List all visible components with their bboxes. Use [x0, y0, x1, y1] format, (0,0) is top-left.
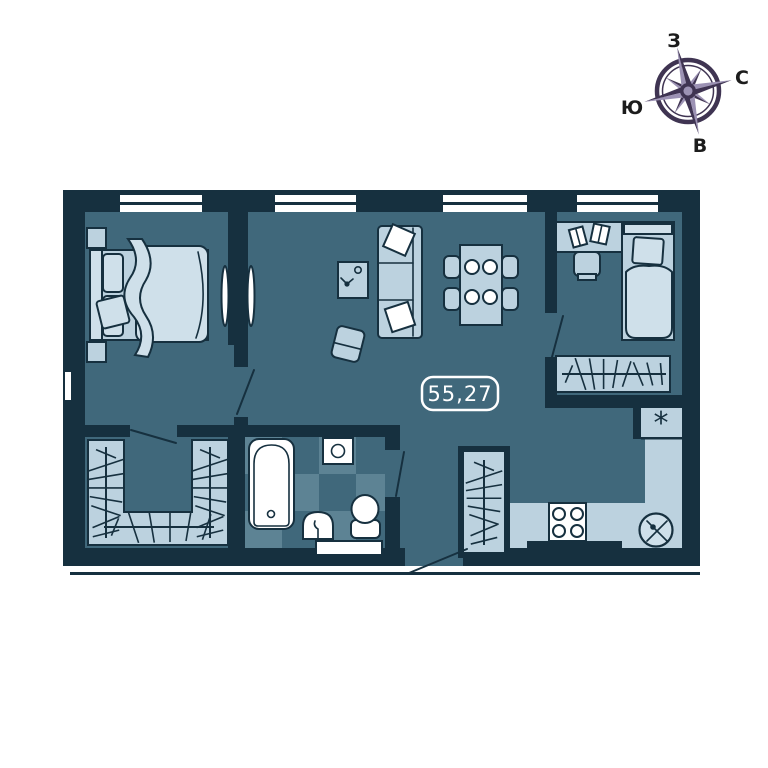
single-bed-blanket — [626, 266, 672, 338]
dining-table — [460, 245, 502, 325]
bed-pillow-1 — [103, 254, 123, 292]
area-badge: 55,27 — [422, 377, 498, 410]
compass-label-west: З — [667, 30, 681, 52]
fridge-divider — [633, 408, 641, 439]
toilet-bowl — [352, 495, 379, 523]
dining-chair-1 — [444, 256, 460, 278]
plate-4 — [483, 290, 497, 304]
compass-label-north: С — [735, 67, 749, 89]
dining-chair-2 — [444, 288, 460, 310]
master-bedroom — [87, 228, 208, 362]
fridge-asterisk-icon: * — [654, 406, 669, 441]
pocket-door-panel-bedroom-side — [222, 266, 229, 326]
compass-rose: З С Ю В — [621, 30, 749, 157]
outer-boundary-line — [70, 572, 700, 575]
bed-headboard — [90, 250, 102, 340]
hallway — [458, 446, 510, 558]
book-2 — [590, 224, 609, 245]
pocket-door-panel-living-side — [248, 266, 255, 326]
nightstand-top — [87, 228, 106, 248]
compass-label-east: В — [693, 135, 707, 157]
plate-3 — [465, 290, 479, 304]
dining-chair-4 — [502, 288, 518, 310]
burner-4 — [571, 525, 583, 537]
sink-tap-dot — [650, 524, 656, 530]
washing-machine — [323, 438, 353, 464]
floorplan-svg: * 55,27 — [0, 0, 768, 768]
burner-2 — [571, 508, 583, 520]
plate-2 — [483, 260, 497, 274]
single-bed-pillow — [632, 237, 664, 265]
child-bedroom-doorway — [545, 313, 557, 357]
bed-cushion — [96, 295, 130, 329]
kitchen-sink — [640, 514, 673, 547]
plate-1 — [465, 260, 479, 274]
dining-chair-3 — [502, 256, 518, 278]
desk — [556, 222, 622, 252]
single-bed-headboard — [624, 224, 672, 234]
desk-chair — [574, 252, 600, 276]
floorplan-page: * 55,27 — [0, 0, 768, 768]
burner-3 — [553, 525, 565, 537]
counter-front-panel — [527, 541, 622, 556]
area-value: 55,27 — [427, 382, 492, 406]
compass-star — [633, 36, 742, 145]
left-wall-slot — [65, 372, 71, 400]
compass-label-south: Ю — [621, 97, 643, 119]
bathroom-shelf — [316, 541, 382, 555]
desk-chair-back — [578, 274, 596, 280]
burner-1 — [553, 508, 565, 520]
nightstand-bottom — [87, 342, 106, 362]
